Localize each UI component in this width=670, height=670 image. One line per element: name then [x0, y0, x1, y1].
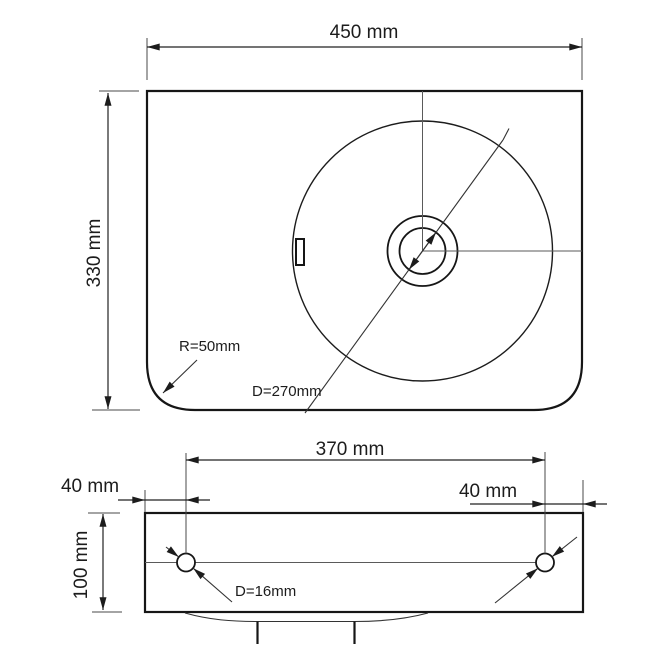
- left-hole-diameter-leader: [166, 547, 232, 602]
- right-offset-label: 40 mm: [459, 481, 517, 502]
- right-hole-diameter-leader: [495, 537, 577, 603]
- dimension-370mm: 370 mm: [186, 439, 545, 460]
- dimension-40mm-left: 40 mm: [61, 476, 210, 500]
- mounting-hole-right: [536, 554, 554, 572]
- front-view: 370 mm 40 mm 40 mm 100 mm: [61, 439, 607, 644]
- dimension-450mm: 450 mm: [147, 22, 582, 80]
- left-offset-label: 40 mm: [61, 476, 119, 497]
- top-width-label: 450 mm: [330, 22, 399, 43]
- technical-drawing-page: 450 mm 330 mm R=50mm D=270mm 370 mm: [0, 0, 670, 670]
- bowl-diameter-leader-tick: [503, 129, 509, 141]
- hole-diameter-label: D=16mm: [235, 583, 296, 600]
- hole-spacing-label: 370 mm: [316, 439, 385, 460]
- underside-recess: [185, 613, 428, 622]
- top-view: 450 mm 330 mm R=50mm D=270mm: [84, 22, 582, 413]
- dimension-100mm: 100 mm: [71, 513, 122, 612]
- bowl-diameter-label: D=270mm: [252, 383, 322, 400]
- dimension-330mm: 330 mm: [84, 91, 140, 410]
- top-depth-label: 330 mm: [84, 219, 105, 288]
- front-height-label: 100 mm: [71, 531, 92, 600]
- corner-radius-label: R=50mm: [179, 338, 240, 355]
- washbasin-drawing: 450 mm 330 mm R=50mm D=270mm 370 mm: [0, 0, 670, 670]
- corner-radius-leader: [163, 360, 197, 393]
- overflow-slot: [296, 239, 304, 265]
- bowl-diameter-leader-line: [305, 140, 503, 413]
- mounting-hole-left: [177, 554, 195, 572]
- dimension-40mm-right: 40 mm: [459, 481, 607, 504]
